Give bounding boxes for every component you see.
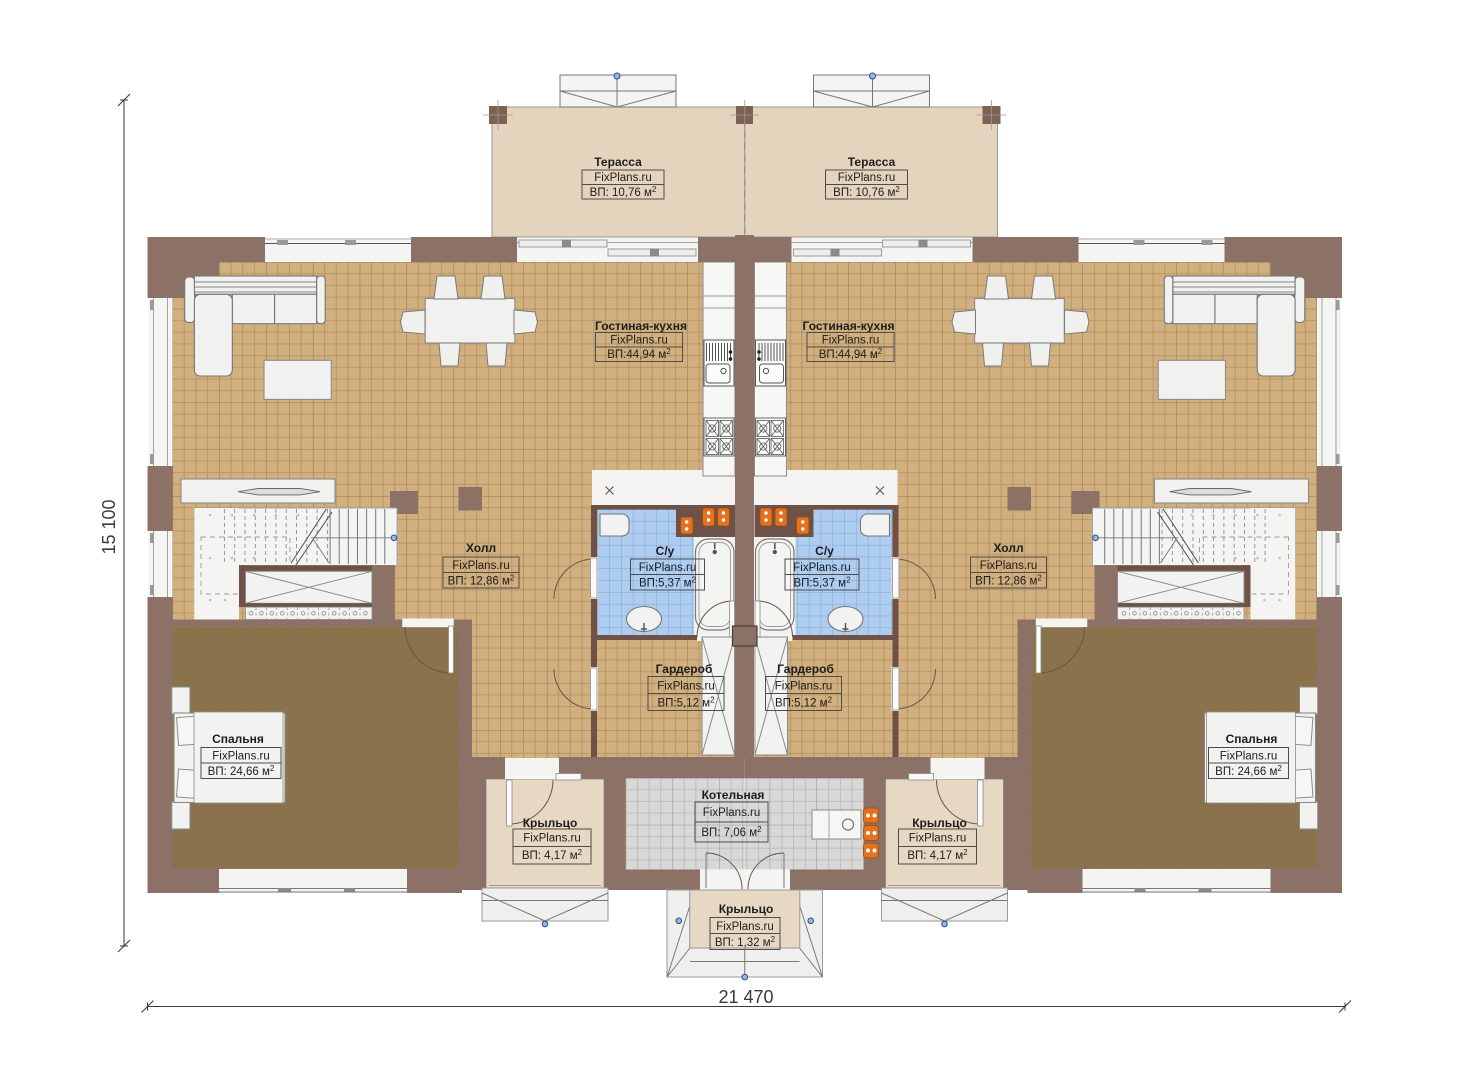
svg-text:FixPlans.ru: FixPlans.ru [909, 833, 967, 845]
svg-text:ВП: 1,32 м2: ВП: 1,32 м2 [715, 935, 776, 949]
svg-text:ВП:5,12 м2: ВП:5,12 м2 [775, 696, 833, 710]
svg-text:ВП: 12,86 м2: ВП: 12,86 м2 [448, 574, 515, 588]
svg-text:Холл: Холл [466, 541, 496, 555]
svg-text:ВП: 10,76 м2: ВП: 10,76 м2 [833, 185, 900, 199]
svg-text:ВП: 12,86 м2: ВП: 12,86 м2 [975, 574, 1042, 588]
svg-text:ВП:5,12 м2: ВП:5,12 м2 [657, 696, 715, 710]
svg-text:ВП: 24,66 м2: ВП: 24,66 м2 [208, 764, 275, 778]
svg-text:FixPlans.ru: FixPlans.ru [594, 172, 652, 184]
svg-text:Холл: Холл [993, 541, 1023, 555]
svg-text:Крыльцо: Крыльцо [719, 902, 774, 916]
svg-text:ВП:44,94 м2: ВП:44,94 м2 [819, 347, 883, 361]
svg-text:Котельная: Котельная [702, 788, 765, 802]
svg-text:Гостиная-кухня: Гостиная-кухня [595, 319, 687, 333]
svg-text:ВП: 4,17 м2: ВП: 4,17 м2 [522, 848, 583, 862]
svg-text:ВП:5,37 м2: ВП:5,37 м2 [793, 576, 851, 590]
svg-text:FixPlans.ru: FixPlans.ru [657, 681, 715, 693]
svg-text:ВП: 10,76 м2: ВП: 10,76 м2 [590, 185, 657, 199]
svg-text:FixPlans.ru: FixPlans.ru [822, 335, 880, 347]
svg-text:С/у: С/у [656, 544, 675, 558]
svg-text:Крыльцо: Крыльцо [523, 816, 578, 830]
svg-text:FixPlans.ru: FixPlans.ru [452, 560, 510, 572]
svg-text:15 100: 15 100 [99, 499, 119, 554]
svg-text:Спальня: Спальня [212, 732, 264, 746]
svg-text:FixPlans.ru: FixPlans.ru [1220, 751, 1278, 763]
svg-text:FixPlans.ru: FixPlans.ru [716, 921, 774, 933]
svg-text:Терасса: Терасса [594, 155, 642, 169]
svg-text:Спальня: Спальня [1226, 732, 1278, 746]
svg-text:FixPlans.ru: FixPlans.ru [775, 681, 833, 693]
svg-text:21 470: 21 470 [718, 987, 773, 1007]
svg-text:Гардероб: Гардероб [656, 662, 713, 676]
svg-text:ВП:5,37 м2: ВП:5,37 м2 [639, 576, 697, 590]
svg-text:ВП: 24,66 м2: ВП: 24,66 м2 [1215, 764, 1282, 778]
svg-text:FixPlans.ru: FixPlans.ru [838, 172, 896, 184]
svg-text:ВП:44,94 м2: ВП:44,94 м2 [607, 347, 671, 361]
svg-text:FixPlans.ru: FixPlans.ru [703, 807, 761, 819]
svg-text:Гардероб: Гардероб [777, 662, 834, 676]
svg-text:Терасса: Терасса [848, 155, 896, 169]
svg-text:С/у: С/у [815, 544, 834, 558]
svg-text:ВП: 4,17 м2: ВП: 4,17 м2 [907, 848, 968, 862]
svg-text:FixPlans.ru: FixPlans.ru [212, 751, 270, 763]
svg-text:ВП: 7,06 м2: ВП: 7,06 м2 [701, 825, 762, 839]
svg-text:Крыльцо: Крыльцо [912, 816, 967, 830]
svg-text:FixPlans.ru: FixPlans.ru [639, 562, 697, 574]
svg-text:FixPlans.ru: FixPlans.ru [523, 833, 581, 845]
svg-text:Гостиная-кухня: Гостиная-кухня [803, 319, 895, 333]
svg-text:FixPlans.ru: FixPlans.ru [980, 560, 1038, 572]
svg-text:FixPlans.ru: FixPlans.ru [793, 562, 851, 574]
svg-text:FixPlans.ru: FixPlans.ru [610, 335, 668, 347]
